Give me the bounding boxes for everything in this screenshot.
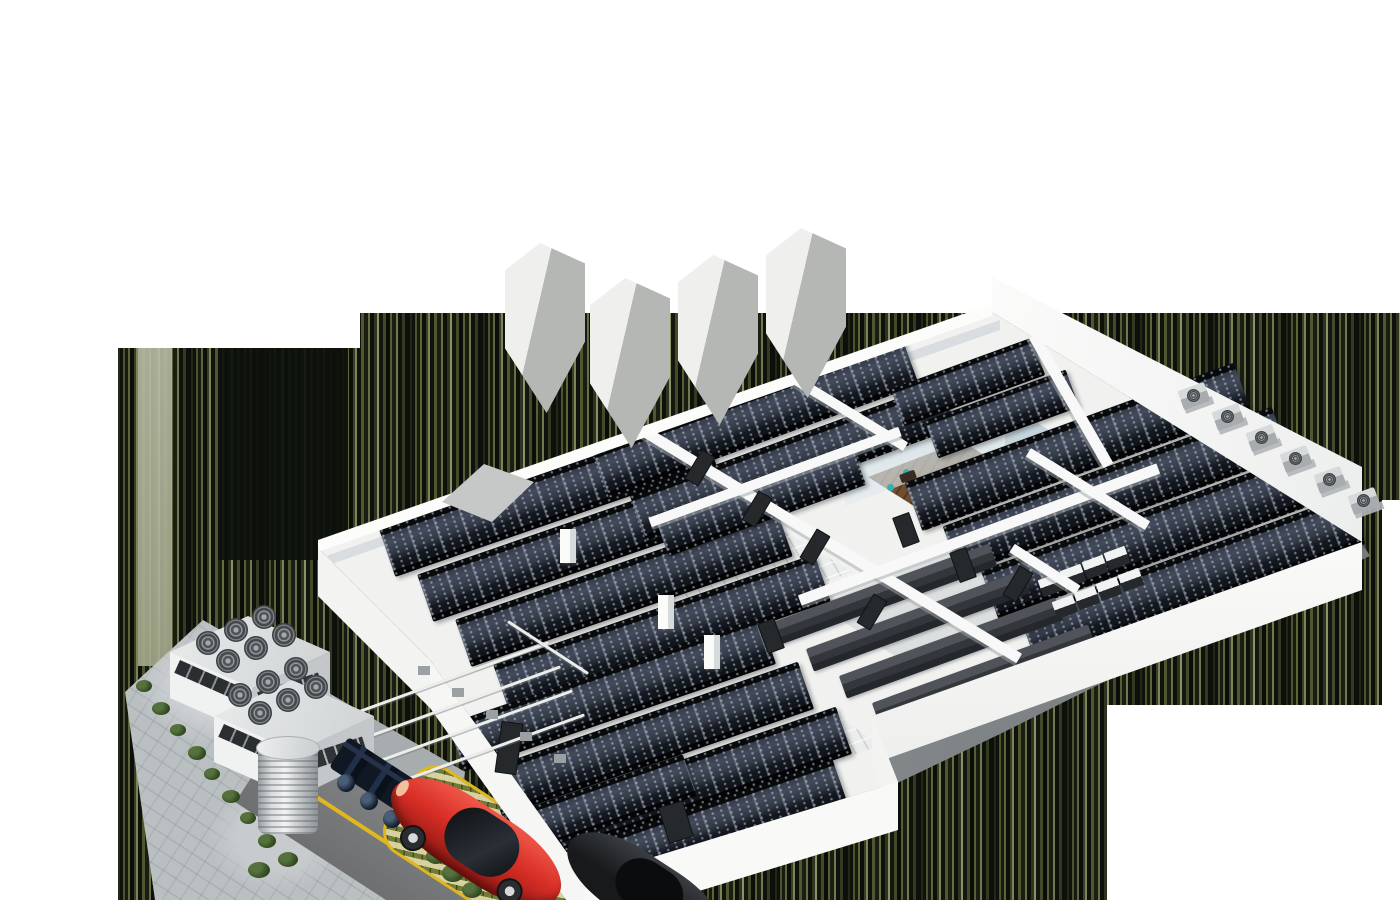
chiller-fan	[272, 623, 296, 647]
shrub	[240, 812, 256, 824]
chiller-fan	[276, 688, 300, 712]
condenser-fan	[1187, 389, 1200, 402]
chiller-fan	[216, 649, 240, 673]
datacenter-isometric-render: Data center facility 3D isometric cutawa…	[0, 0, 1400, 900]
water-tank-top	[256, 736, 320, 760]
pipe-support	[418, 666, 430, 675]
chiller-fan	[196, 631, 220, 655]
shrub	[222, 790, 240, 803]
shrub	[248, 862, 270, 878]
shrub	[188, 746, 206, 760]
condenser-fan	[1289, 452, 1302, 465]
water-tank-body	[258, 748, 318, 834]
chiller-fan	[256, 670, 280, 694]
chiller-fan	[244, 636, 268, 660]
pump-motor	[337, 774, 355, 792]
noise-khaki-column	[138, 348, 172, 666]
pipe-support	[486, 710, 498, 719]
shrub	[278, 852, 298, 867]
shrub	[136, 680, 152, 692]
condenser-fan	[1357, 494, 1370, 507]
condenser-fan	[1323, 473, 1336, 486]
hall-pillar	[560, 529, 576, 563]
condenser-fan	[1255, 431, 1268, 444]
pipe-support	[554, 754, 566, 763]
chiller-fan	[252, 605, 276, 629]
chiller-fan	[304, 675, 328, 699]
hall-pillar	[658, 595, 674, 629]
condenser-fan	[1221, 410, 1234, 423]
chiller-fan	[284, 657, 308, 681]
shrub	[258, 834, 276, 848]
chiller-fan	[228, 683, 252, 707]
office-chair	[887, 484, 894, 491]
hall-pillar	[704, 635, 720, 669]
noise-dark-block	[218, 348, 348, 560]
pipe-support	[520, 732, 532, 741]
shrub	[170, 724, 186, 736]
chiller-fan	[224, 618, 248, 642]
chiller-fan	[248, 701, 272, 725]
pump-motor	[360, 792, 378, 810]
pipe-support	[452, 688, 464, 697]
shrub	[204, 768, 220, 780]
shrub	[152, 702, 170, 715]
